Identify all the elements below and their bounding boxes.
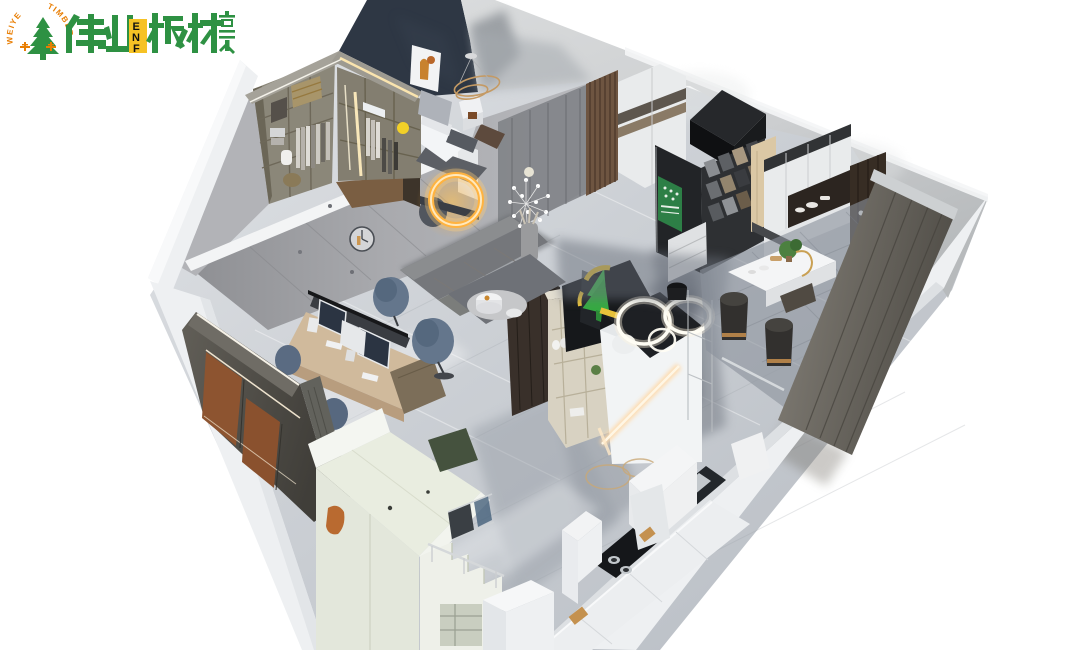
svg-text:F: F xyxy=(133,43,140,55)
